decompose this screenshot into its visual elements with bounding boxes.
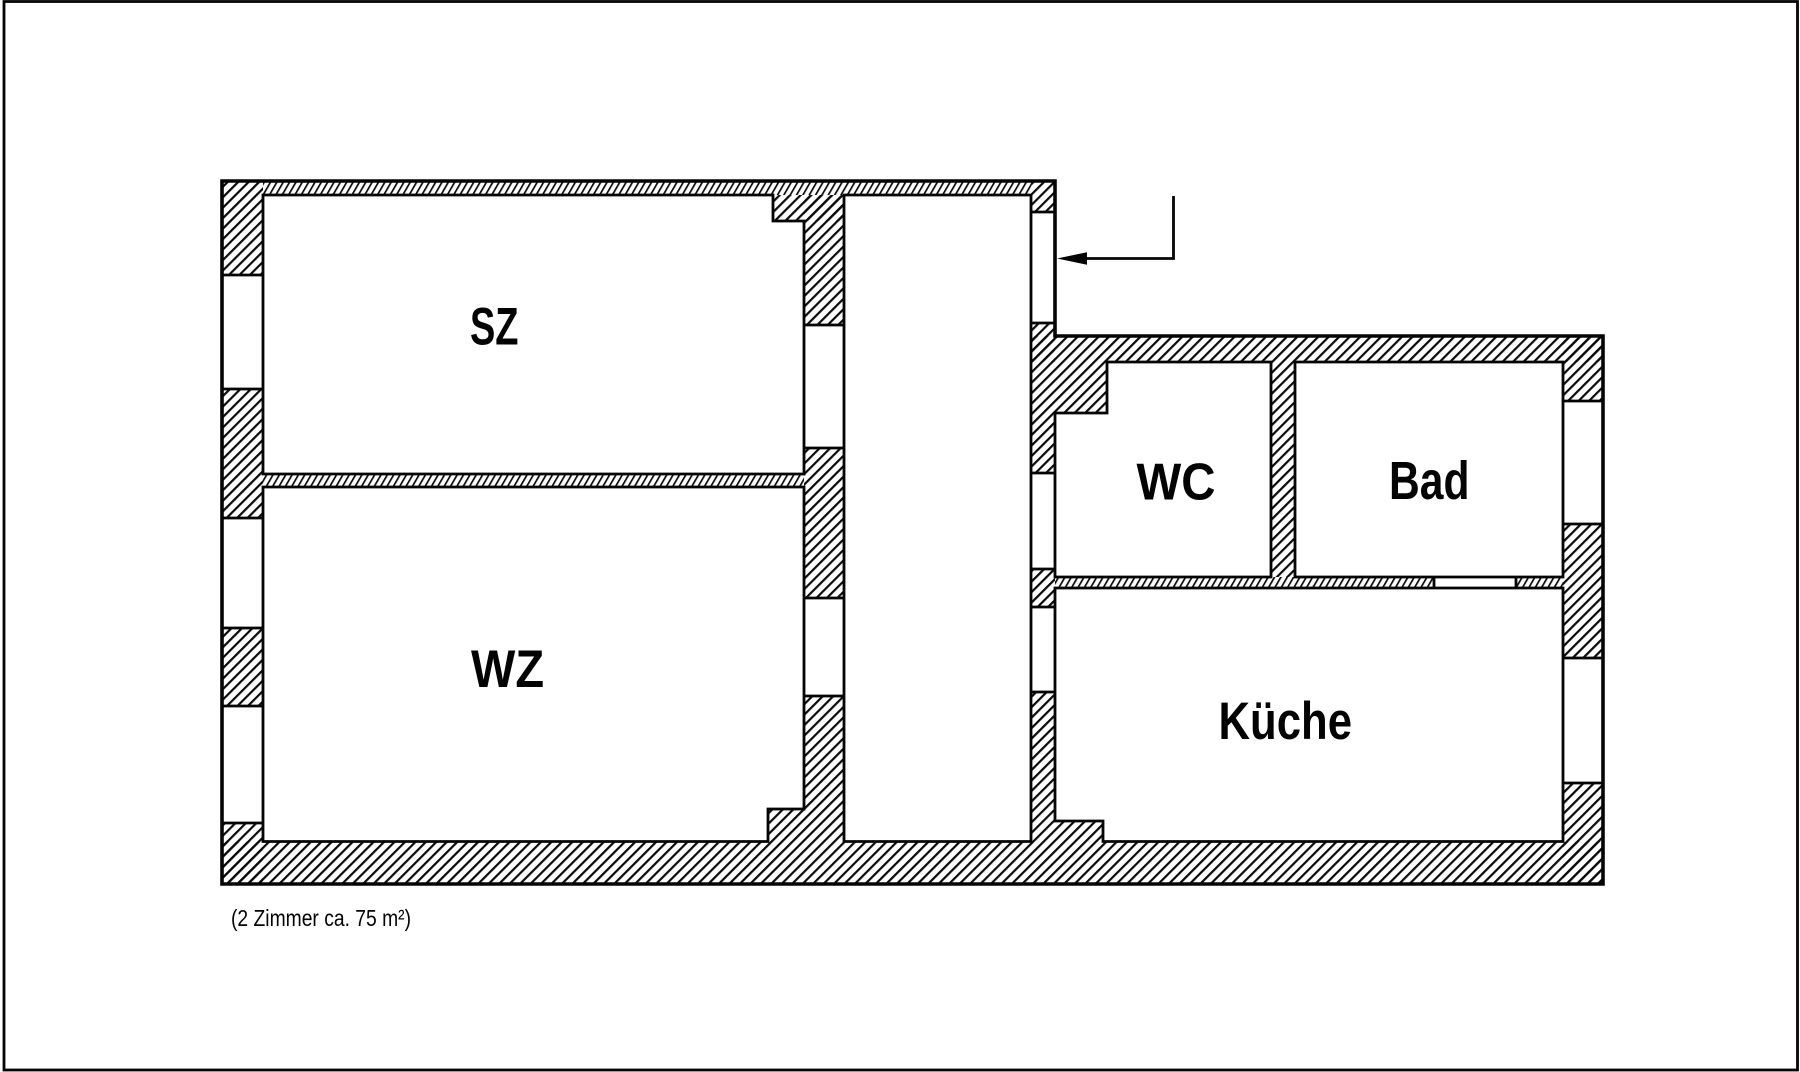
svg-text:WC: WC [1137, 454, 1216, 512]
svg-text:WZ: WZ [471, 640, 544, 699]
svg-text:Küche: Küche [1219, 692, 1353, 751]
svg-text:(2 Zimmer ca. 75 m²): (2 Zimmer ca. 75 m²) [231, 905, 411, 931]
svg-text:Bad: Bad [1389, 452, 1470, 511]
svg-text:SZ: SZ [470, 298, 519, 357]
